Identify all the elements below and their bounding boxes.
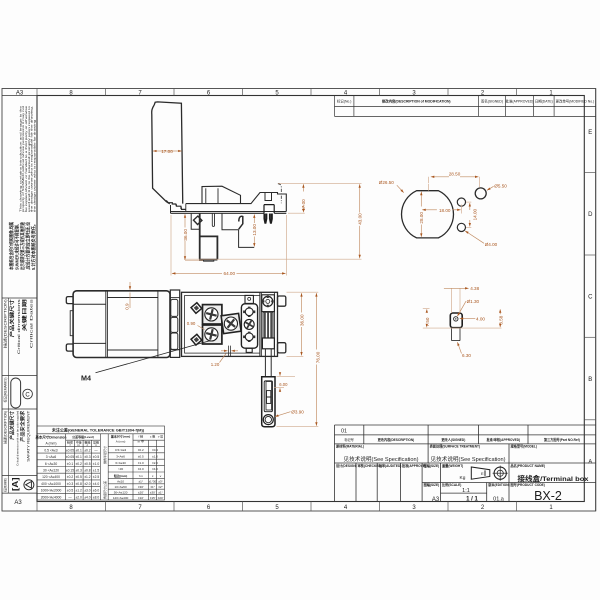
svg-text:±0.3: ±0.3 — [75, 469, 82, 473]
svg-text:比例(SCALE): 比例(SCALE) — [442, 482, 461, 487]
svg-text:日期(DATE): 日期(DATE) — [535, 98, 553, 103]
svg-text:13.00: 13.00 — [252, 224, 257, 236]
svg-text:±0.4: ±0.4 — [152, 448, 158, 452]
svg-text:描述(DESCRIPTION): 描述(DESCRIPTION) — [3, 299, 8, 348]
svg-text:±0.2: ±0.2 — [84, 448, 91, 452]
svg-text:±0.2: ±0.2 — [138, 448, 144, 452]
svg-text:见技术说明(See Specification): 见技术说明(See Specification) — [431, 455, 506, 463]
svg-text:版本(EDITION): 版本(EDITION) — [488, 482, 509, 487]
svg-text:A (mm): A (mm) — [46, 442, 57, 446]
svg-text:M4: M4 — [81, 374, 91, 383]
svg-text:4.00: 4.00 — [476, 316, 485, 321]
svg-text:±0.5: ±0.5 — [67, 489, 74, 493]
svg-text:±20': ±20' — [158, 496, 164, 500]
svg-text:品名(PRODUCT NAME): 品名(PRODUCT NAME) — [511, 463, 546, 468]
svg-text:产品关键尺寸: 产品关键尺寸 — [9, 299, 16, 338]
svg-text:原材料(MATERIAL): 原材料(MATERIAL) — [336, 444, 364, 449]
svg-text:±0.8: ±0.8 — [84, 469, 91, 473]
svg-text:2000<A≤4000: 2000<A≤4000 — [41, 495, 62, 499]
svg-text:1.20: 1.20 — [211, 362, 220, 367]
svg-text:50<A≤120: 50<A≤120 — [114, 490, 128, 494]
svg-text:±1°30': ±1°30' — [148, 480, 157, 484]
svg-text:6 <A≤30: 6 <A≤30 — [45, 462, 58, 466]
svg-text:5.计方对本图纸负有责任。: 5.计方对本图纸负有责任。 — [30, 222, 37, 270]
svg-text:±2.0: ±2.0 — [75, 495, 82, 499]
svg-text:标记(REMARKS): 标记(REMARKS) — [3, 378, 8, 403]
svg-text:±1.2: ±1.2 — [84, 475, 91, 479]
svg-text:v 最: v 最 — [158, 434, 163, 439]
svg-text:B: B — [588, 377, 592, 383]
svg-text:±4.0: ±4.0 — [93, 482, 100, 486]
svg-text:±0.5: ±0.5 — [138, 454, 144, 458]
svg-text:关键日期: 关键日期 — [21, 299, 28, 332]
svg-text:标记号: 标记号 — [344, 437, 354, 442]
svg-text:设计(DESIGN): 设计(DESIGN) — [336, 463, 357, 468]
svg-text:±0.5: ±0.5 — [75, 475, 82, 479]
svg-text:C: C — [588, 295, 593, 301]
svg-text:E: E — [588, 130, 592, 136]
svg-text:SAFATY REQUIREMENT: SAFATY REQUIREMENT — [27, 410, 31, 462]
svg-text:7.50: 7.50 — [425, 317, 430, 326]
svg-text:±2.0: ±2.0 — [138, 467, 144, 471]
svg-text:36.00: 36.00 — [183, 229, 188, 241]
svg-text:±0.1: ±0.1 — [67, 462, 74, 466]
svg-text:Ø1.30: Ø1.30 — [467, 299, 480, 304]
svg-text:±1.2: ±1.2 — [75, 489, 82, 493]
svg-text:Critical Dates: Critical Dates — [29, 299, 33, 348]
svg-text:更改单号(MODIFIED No.): 更改单号(MODIFIED No.) — [556, 98, 595, 103]
svg-text:Kg: Kg — [460, 475, 466, 481]
svg-text:批准/审核(APPROVED): 批准/审核(APPROVED) — [486, 437, 520, 442]
svg-text:0.5 <A≤3: 0.5 <A≤3 — [44, 448, 57, 452]
svg-text:BX-2: BX-2 — [534, 489, 562, 503]
svg-text:更改人(SIGNED): 更改人(SIGNED) — [441, 437, 465, 442]
svg-text:重量(WEIGHT): 重量(WEIGHT) — [442, 463, 463, 468]
svg-text:批准(APPROVE): 批准(APPROVE) — [402, 463, 426, 468]
svg-text:A3: A3 — [14, 500, 22, 506]
svg-text:标审(AUDITED): 标审(AUDITED) — [378, 463, 402, 468]
svg-text:基本尺寸Dimension: 基本尺寸Dimension — [35, 435, 67, 440]
svg-text:±6.0: ±6.0 — [93, 489, 100, 493]
svg-text:基本尺寸(mm): 基本尺寸(mm) — [110, 434, 130, 439]
svg-text:±1°: ±1° — [158, 490, 163, 494]
svg-text:4.38: 4.38 — [470, 286, 479, 291]
svg-text:修改内容(DESCRIPTION of MODIFICATI: 修改内容(DESCRIPTION of MODIFICATION) — [381, 98, 451, 103]
svg-text:E: E — [481, 471, 484, 476]
svg-text:1000<A≤2000: 1000<A≤2000 — [41, 489, 62, 493]
svg-text:±0.8: ±0.8 — [75, 482, 82, 486]
svg-text:1 / 1: 1 / 1 — [466, 497, 478, 503]
svg-text:±0.15: ±0.15 — [66, 469, 74, 473]
svg-text:±0.5: ±0.5 — [84, 462, 91, 466]
svg-text:30 <A≤120: 30 <A≤120 — [43, 469, 59, 473]
svg-text:8.58: 8.58 — [498, 315, 503, 324]
svg-text:接线盒/Terminal box: 接线盒/Terminal box — [518, 474, 589, 483]
svg-text:f 精: f 精 — [138, 434, 143, 439]
svg-text:±3°: ±3° — [158, 480, 163, 484]
svg-text:Critical dimensions: Critical dimensions — [17, 299, 21, 354]
svg-text:±2.0: ±2.0 — [84, 482, 91, 486]
svg-text:c 粗: c 粗 — [150, 434, 155, 439]
svg-text:±15': ±15' — [150, 496, 156, 500]
svg-text:±4.0: ±4.0 — [152, 467, 158, 471]
svg-text:01: 01 — [341, 429, 347, 435]
svg-text:未注公差(GENERAL TOLERANCE GB/T180: 未注公差(GENERAL TOLERANCE GB/T1804-f(M)) — [51, 427, 145, 433]
svg-text:Ø26.50: Ø26.50 — [379, 180, 395, 185]
svg-text:43.00: 43.00 — [358, 213, 363, 225]
svg-text:公差等级(Level): 公差等级(Level) — [72, 434, 94, 439]
svg-text:18.00: 18.00 — [439, 208, 451, 213]
svg-text:±8.0: ±8.0 — [93, 495, 100, 499]
svg-text:图幅(SIZE): 图幅(SIZE) — [424, 482, 440, 487]
svg-text:3 <A≤6: 3 <A≤6 — [46, 455, 57, 459]
svg-text:6.30: 6.30 — [462, 353, 471, 358]
svg-text:01.a: 01.a — [493, 497, 505, 503]
svg-text:0.5<A≤3: 0.5<A≤3 — [115, 448, 127, 452]
svg-text:表面处理(SURFACE TREATMENT): 表面处理(SURFACE TREATMENT) — [429, 444, 480, 449]
svg-text:±3.0: ±3.0 — [84, 489, 91, 493]
svg-text:第三方图号(Part NO.Ref): 第三方图号(Part NO.Ref) — [544, 437, 580, 442]
svg-text:[A]: [A] — [11, 477, 20, 491]
svg-text:倒角半径尺寸: 倒角半径尺寸 — [102, 446, 107, 464]
svg-text:10<A≤50: 10<A≤50 — [115, 485, 127, 489]
svg-text:±10': ±10' — [138, 496, 144, 500]
svg-text:f m: f m — [139, 474, 144, 478]
svg-text:C: C — [25, 392, 30, 398]
svg-text:见技术说明(See Specification): 见技术说明(See Specification) — [344, 455, 419, 463]
svg-text:±1.0: ±1.0 — [93, 462, 100, 466]
svg-text:0.9: 0.9 — [124, 303, 129, 310]
svg-text:更改内容(DESCRIPTION): 更改内容(DESCRIPTION) — [378, 437, 415, 442]
svg-text:±0.3: ±0.3 — [84, 455, 91, 459]
svg-text:±30': ±30' — [150, 490, 156, 494]
svg-text:>30: >30 — [118, 467, 123, 471]
svg-text:120 <A≤400: 120 <A≤400 — [42, 475, 60, 479]
svg-text:±30': ±30' — [138, 485, 144, 489]
svg-text:签名(SIGNED): 签名(SIGNED) — [481, 98, 503, 103]
svg-text:A3: A3 — [432, 497, 440, 503]
svg-text:短边(mm): 短边(mm) — [114, 473, 127, 478]
svg-text:6<A≤30: 6<A≤30 — [115, 461, 126, 465]
svg-text:描述(DESCRIPTION): 描述(DESCRIPTION) — [3, 411, 8, 444]
svg-text:产品安全要求: 产品安全要求 — [19, 410, 26, 441]
svg-text:±0.2: ±0.2 — [67, 475, 74, 479]
svg-text:0.90: 0.90 — [187, 321, 196, 326]
svg-text:产品关键尺寸: 产品关键尺寸 — [8, 410, 15, 439]
svg-text:±0.2: ±0.2 — [75, 462, 82, 466]
svg-text:批准(APPROVED): 批准(APPROVED) — [506, 98, 534, 103]
svg-text:17.00: 17.00 — [301, 199, 306, 211]
svg-text:Ø4.00: Ø4.00 — [485, 242, 498, 247]
svg-text:28.50: 28.50 — [449, 172, 461, 177]
svg-text:标记(No.): 标记(No.) — [337, 98, 351, 103]
svg-text:标记(REMARKS): 标记(REMARKS) — [3, 478, 8, 492]
svg-text:±0.1: ±0.1 — [75, 448, 82, 452]
svg-text:400 <A≤1000: 400 <A≤1000 — [41, 482, 61, 486]
svg-text:A≤10: A≤10 — [117, 480, 124, 484]
svg-text:120<A≤400: 120<A≤400 — [113, 496, 129, 500]
svg-text:图幅(SIZE): 图幅(SIZE) — [424, 463, 440, 468]
svg-text:Ø3.90: Ø3.90 — [291, 410, 304, 415]
svg-text:角度尺寸公差: 角度尺寸公差 — [102, 481, 107, 499]
svg-text:±4.0: ±4.0 — [84, 495, 91, 499]
svg-text:76.00: 76.00 — [316, 351, 321, 363]
svg-text:±0.05: ±0.05 — [66, 455, 74, 459]
svg-text:64.00: 64.00 — [224, 271, 236, 276]
svg-text:±0.05: ±0.05 — [66, 448, 74, 452]
svg-text:3<A≤6: 3<A≤6 — [116, 454, 125, 458]
svg-text:±2.5: ±2.5 — [93, 475, 100, 479]
svg-text:±2°: ±2° — [158, 485, 163, 489]
svg-text:36.00: 36.00 — [299, 314, 304, 326]
svg-text:±1.0: ±1.0 — [138, 461, 144, 465]
svg-text:±0.3: ±0.3 — [67, 482, 74, 486]
svg-text:6.00: 6.00 — [279, 382, 288, 387]
svg-text:28.00: 28.00 — [419, 212, 424, 224]
svg-text:14.00: 14.00 — [472, 208, 477, 220]
svg-text:±0.1: ±0.1 — [75, 455, 82, 459]
svg-text:±1.5: ±1.5 — [93, 469, 100, 473]
svg-text:17.00: 17.00 — [161, 149, 173, 154]
svg-text:A (mm): A (mm) — [116, 440, 126, 444]
svg-text:±1°: ±1° — [139, 480, 144, 484]
svg-text:±1.0: ±1.0 — [152, 454, 158, 458]
svg-text:±2.0: ±2.0 — [152, 461, 158, 465]
svg-text:1:1: 1:1 — [462, 488, 470, 494]
svg-text:Ø5.50: Ø5.50 — [494, 183, 507, 188]
svg-text:the design owner who is respon: the design owner who is responsible for … — [32, 120, 36, 212]
svg-text:D: D — [588, 212, 593, 218]
svg-text:±0.5: ±0.5 — [93, 455, 100, 459]
svg-text:±20': ±20' — [138, 490, 144, 494]
svg-text:m 中: m 中 — [138, 439, 144, 444]
svg-text:规格型号(MODEL): 规格型号(MODEL) — [511, 444, 537, 449]
